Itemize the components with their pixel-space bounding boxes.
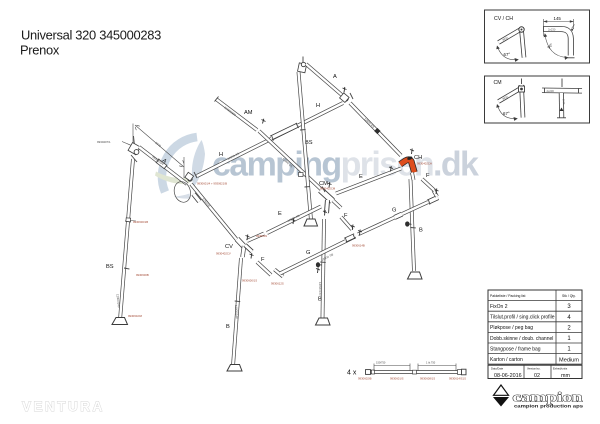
- svg-text:1 ib.750: 1 ib.750: [426, 361, 436, 365]
- svg-text:BS: BS: [106, 264, 114, 270]
- svg-text:B: B: [419, 228, 423, 234]
- svg-text:CV / CH: CV / CH: [494, 16, 513, 22]
- svg-text:F: F: [426, 173, 430, 179]
- svg-text:CH: CH: [414, 155, 422, 161]
- svg-text:67°: 67°: [503, 111, 510, 116]
- svg-text:Pakkeliste / Packing list: Pakkeliste / Packing list: [490, 294, 525, 298]
- svg-text:12900/140: 12900/140: [116, 294, 121, 308]
- svg-text:Enhed/units: Enhed/units: [553, 367, 568, 371]
- svg-text:9930402CM: 9930402CM: [320, 187, 336, 191]
- svg-text:9930402CV: 9930402CV: [216, 252, 231, 256]
- svg-text:9930600/1S: 9930600/1S: [242, 279, 257, 283]
- svg-text:Stk / Qty.: Stk / Qty.: [562, 294, 576, 298]
- svg-text:150/750: 150/750: [376, 361, 386, 365]
- svg-text:4 x: 4 x: [347, 370, 357, 377]
- svg-text:2x230: 2x230: [547, 89, 555, 93]
- svg-text:mm: mm: [561, 373, 570, 379]
- svg-text:H: H: [316, 103, 320, 109]
- svg-text:2x230: 2x230: [548, 28, 556, 32]
- svg-text:B: B: [226, 324, 230, 330]
- svg-text:9930600/1B: 9930600/1B: [133, 220, 148, 224]
- svg-text:2x95: 2x95: [562, 99, 566, 105]
- svg-text:G: G: [306, 250, 310, 256]
- svg-text:12900/140: 12900/140: [318, 282, 322, 296]
- svg-text:02: 02: [534, 373, 540, 379]
- svg-text:Universal 320 345000283: Universal 320 345000283: [21, 28, 161, 43]
- svg-text:9930612S: 9930612S: [271, 282, 284, 286]
- svg-text:H: H: [219, 152, 223, 158]
- svg-text:9930600B: 9930600B: [136, 273, 149, 277]
- svg-text:Dato/Date: Dato/Date: [491, 367, 504, 371]
- svg-text:9930608M: 9930608M: [223, 106, 237, 118]
- svg-text:145: 145: [554, 16, 562, 21]
- svg-text:G: G: [392, 208, 396, 214]
- svg-text:Dobb.skinne / doub. channel: Dobb.skinne / doub. channel: [490, 336, 553, 342]
- svg-text:F: F: [261, 257, 265, 263]
- svg-text:FixOn 2: FixOn 2: [490, 304, 508, 310]
- svg-text:9930402CH: 9930402CH: [417, 162, 432, 166]
- svg-text:Prenox: Prenox: [20, 43, 60, 58]
- svg-text:Stangpose / frame bag: Stangpose / frame bag: [490, 346, 541, 352]
- svg-text:9930614/S1S: 9930614/S1S: [449, 377, 466, 381]
- svg-text:Version/no.: Version/no.: [527, 367, 541, 371]
- svg-text:E: E: [359, 174, 363, 180]
- svg-text:Tilslut.profil / sing.click pr: Tilslut.profil / sing.click profile: [490, 315, 555, 321]
- svg-text:08-06-2016: 08-06-2016: [494, 373, 522, 379]
- svg-text:9930602/M: 9930602/M: [128, 314, 143, 318]
- svg-text:BS: BS: [305, 140, 313, 146]
- svg-text:67°: 67°: [504, 52, 511, 57]
- svg-text:12900 4/5: 12900 4/5: [363, 117, 375, 129]
- svg-text:campion production aps: campion production aps: [514, 404, 584, 409]
- svg-text:9930601/4 + 9930621/B: 9930601/4 + 9930621/B: [197, 182, 227, 186]
- svg-text:9930407/1: 9930407/1: [97, 140, 111, 144]
- svg-text:CV: CV: [225, 244, 233, 250]
- svg-text:CM: CM: [494, 80, 502, 86]
- svg-text:B: B: [318, 297, 322, 303]
- svg-text:E: E: [278, 211, 282, 217]
- svg-text:F: F: [344, 213, 348, 219]
- svg-text:9930602/B: 9930602/B: [358, 377, 372, 381]
- svg-text:Pløkpose / peg bag: Pløkpose / peg bag: [490, 325, 533, 331]
- svg-text:Karton / carton: Karton / carton: [490, 357, 523, 363]
- svg-text:VENTURA: VENTURA: [22, 399, 105, 414]
- svg-text:9930609: 9930609: [256, 234, 267, 238]
- svg-text:9930614B: 9930614B: [352, 244, 365, 248]
- svg-text:9930601/S: 9930601/S: [390, 377, 404, 381]
- svg-text:campingprisen.dk: campingprisen.dk: [212, 146, 479, 184]
- svg-text:A: A: [333, 74, 337, 80]
- svg-text:Medium: Medium: [559, 357, 579, 363]
- svg-text:9930608/1S: 9930608/1S: [420, 377, 435, 381]
- svg-text:AM: AM: [244, 110, 253, 116]
